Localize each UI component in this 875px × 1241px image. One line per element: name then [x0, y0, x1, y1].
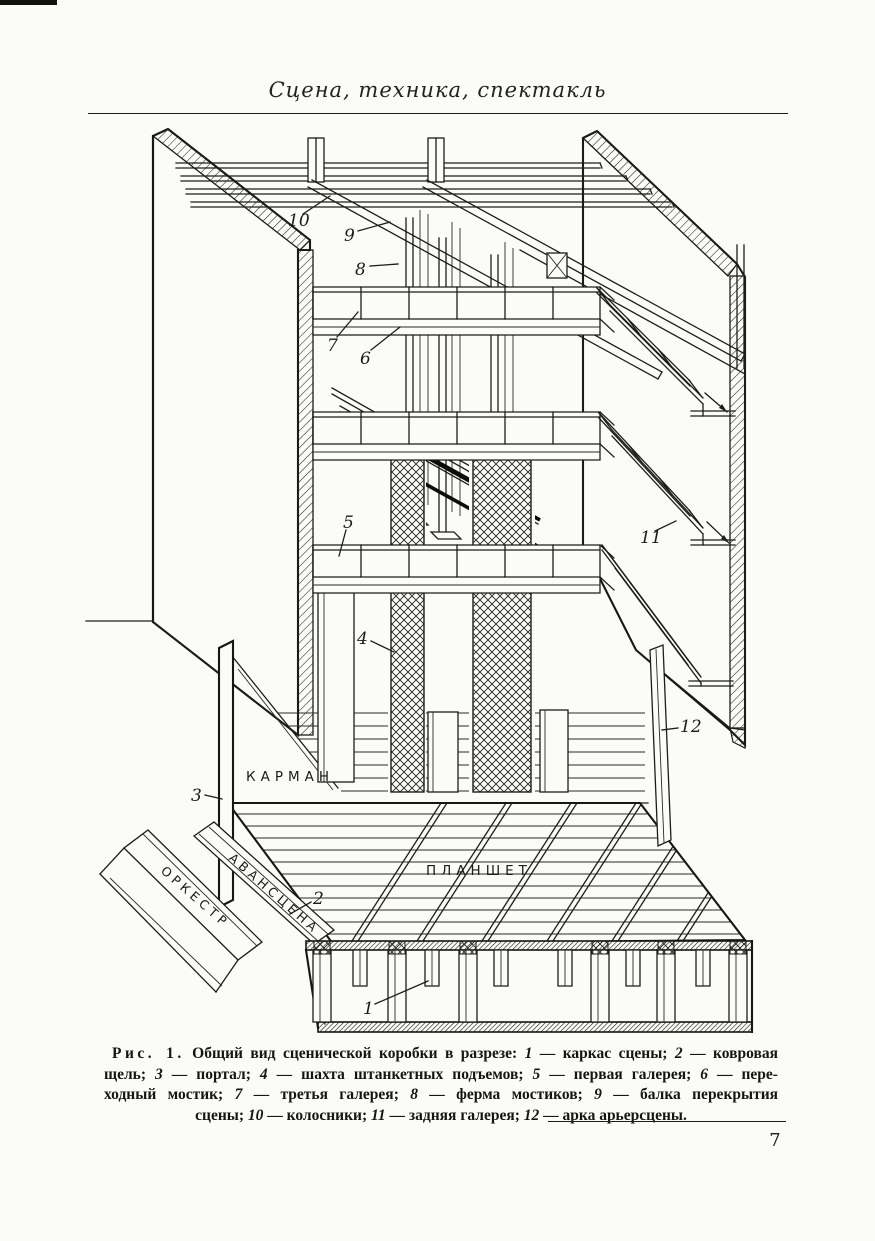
figure-caption: Рис. 1. Общий вид сценической коробки в … [104, 1044, 778, 1126]
footer-rule [548, 1121, 786, 1122]
callout-9: 9 [344, 226, 355, 246]
callout-10: 10 [288, 211, 310, 231]
callout-4: 4 [356, 629, 368, 649]
hoist-shafts [318, 447, 568, 792]
callout-3: 3 [191, 786, 202, 806]
book-page: Сцена, техника, спектакль [0, 0, 875, 1241]
caption-line: щель; 3 — портал; 4 — шахта штанкетных п… [104, 1065, 778, 1086]
callout-2: 2 [312, 889, 324, 909]
callout-7: 7 [327, 336, 338, 356]
left-wall [86, 129, 313, 735]
label-karman: КАРМАН [246, 769, 334, 785]
callout-5: 5 [343, 513, 354, 533]
callout-6: 6 [360, 349, 371, 369]
substage-frame [305, 941, 753, 1033]
page-number: 7 [760, 1130, 790, 1151]
callout-11: 11 [640, 528, 662, 548]
caption-line: сцены; 10 — колосники; 11 — задняя галер… [104, 1106, 778, 1127]
caption-line: ходный мостик; 7 — третья галерея; 8 — ф… [104, 1085, 778, 1106]
caption-line: Рис. 1. Общий вид сценической коробки в … [104, 1044, 778, 1065]
callout-8: 8 [355, 260, 366, 280]
callout-12: 12 [680, 717, 702, 737]
left-galleries [313, 287, 614, 593]
callout-1: 1 [363, 999, 374, 1019]
label-planshet: ПЛАНШЕТ [426, 863, 532, 879]
